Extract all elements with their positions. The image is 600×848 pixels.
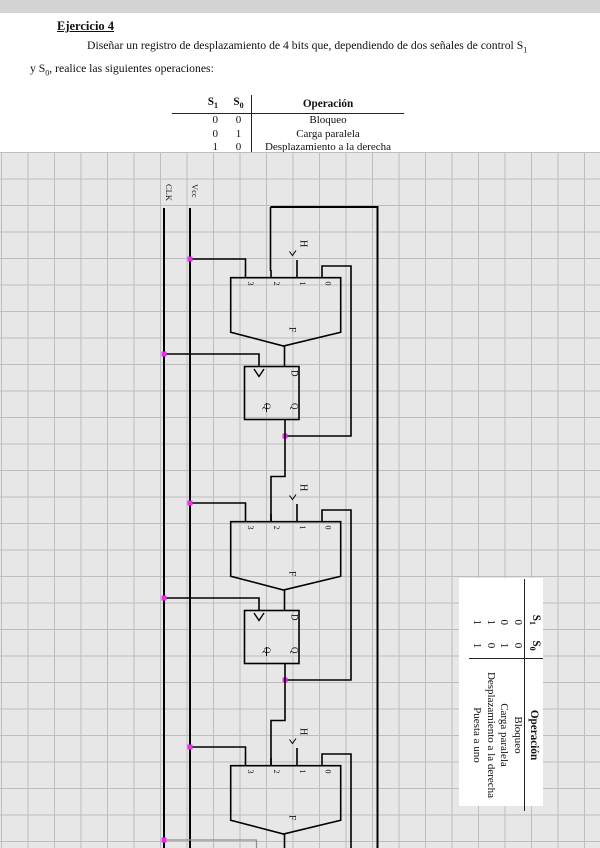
- vcc-tap-wire: [190, 259, 246, 278]
- hold-feedback-wire: [322, 266, 351, 360]
- table-row: 0 1 Carga paralela: [497, 579, 511, 811]
- mux-pin2-label: 2: [272, 282, 281, 286]
- register-stage-3-mux: [188, 728, 352, 848]
- mux-pin0-label: 0: [324, 282, 333, 286]
- clk-tap-wire: [164, 354, 259, 367]
- clk-rail-label: CLK: [164, 184, 174, 202]
- mux-stage: H 3 2 1 0 F: [188, 240, 352, 360]
- table-header-row: S1 S0 Operación: [524, 579, 543, 811]
- table-row: 0 0 Bloqueo: [510, 579, 524, 811]
- ff-q-label: Q: [290, 403, 300, 410]
- flipflop-stage: D Q Q: [162, 346, 300, 436]
- header-s0: S0: [524, 633, 543, 659]
- mux-pin1-label: 1: [298, 282, 307, 286]
- mux-output-label: F: [287, 327, 297, 332]
- logic-high-label: H: [298, 240, 309, 247]
- logic-high-tick-icon: [290, 251, 297, 256]
- junction-dot: [188, 257, 193, 262]
- rotated-table-inner: S1 S0 Operación 0 0 Bloqueo 0 1 Carga pa…: [459, 578, 543, 806]
- header-s1: S1: [524, 579, 543, 633]
- q1-to-mux2-wire: [271, 436, 285, 522]
- table-row: 1 0 Desplazamiento a la derecha: [483, 579, 497, 811]
- clk-tap-wire-stage3: [164, 840, 257, 848]
- junction-dot: [162, 838, 167, 843]
- ff-d-label: D: [290, 370, 300, 377]
- mux-body: [231, 278, 341, 346]
- clock-triangle-icon: [254, 369, 264, 377]
- rotated-table-panel: S1 S0 Operación 0 0 Bloqueo 0 1 Carga pa…: [459, 578, 543, 806]
- vcc-rail-label: Vcc: [190, 184, 200, 198]
- operation-table-rotated: S1 S0 Operación 0 0 Bloqueo 0 1 Carga pa…: [469, 579, 543, 811]
- junction-dot: [162, 352, 167, 357]
- document-page: { "document": { "title": "Ejercicio 4", …: [0, 0, 600, 848]
- mux-pin3-label: 3: [246, 282, 255, 286]
- header-operation: Operación: [524, 659, 543, 812]
- table-row: 1 1 Puesta a uno: [469, 579, 483, 811]
- q2-to-mux3-wire: [271, 680, 285, 766]
